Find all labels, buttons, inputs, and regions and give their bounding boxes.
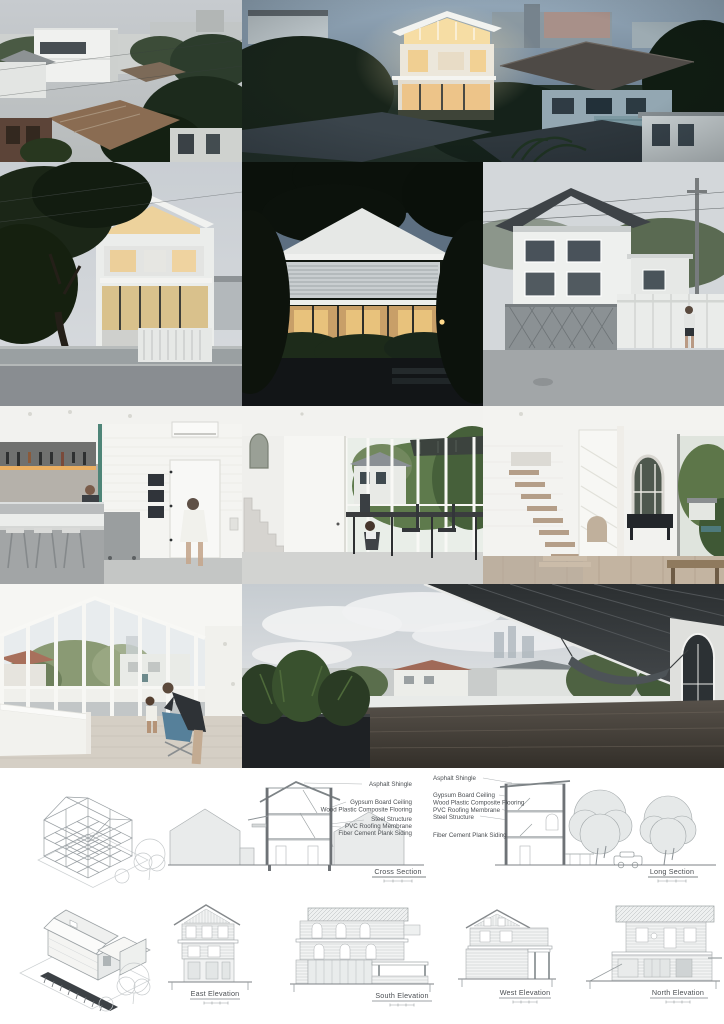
cross-material-steel-structure: Steel Structure (371, 816, 412, 823)
north-elevation-drawing: North Elevation (586, 906, 722, 1004)
photo-staircase (483, 406, 724, 584)
long-material-pvc-membrane: PVC Roofing Membrane (433, 807, 501, 814)
drawings-section: Asphalt Shingle Gypsum Board Ceiling Woo… (0, 768, 724, 1024)
long-section-drawing: Asphalt Shingle Gypsum Board Ceiling Woo… (433, 775, 716, 883)
long-section-trees (569, 790, 696, 854)
structural-frame-axonometric (38, 797, 165, 888)
long-section-scale-bar (658, 880, 686, 883)
long-material-fiber-cement: Fiber Cement Plank Siding (433, 832, 507, 839)
photo-street-corner-dusk (0, 162, 242, 406)
house-axonometric (20, 910, 150, 1011)
cross-material-wpc-flooring: Wood Plastic Composite Flooring (321, 807, 413, 814)
photo-dining (242, 406, 483, 584)
east-elevation-drawing: East Elevation (168, 905, 252, 1005)
photo-aerial-day (0, 0, 242, 162)
cross-section-drawing: Asphalt Shingle Gypsum Board Ceiling Woo… (168, 781, 426, 883)
south-elevation-drawing: South Elevation (290, 908, 434, 1007)
south-elevation-caption: South Elevation (375, 991, 428, 1000)
photo-attic-living (0, 584, 242, 768)
photo-roof-terrace (242, 584, 724, 768)
cross-section-scale-bar (384, 880, 412, 883)
west-elevation-caption: West Elevation (500, 988, 551, 997)
north-elevation-caption: North Elevation (652, 988, 704, 997)
long-material-asphalt-shingle: Asphalt Shingle (433, 775, 477, 782)
cross-section-caption: Cross Section (374, 867, 421, 876)
west-elevation-drawing: West Elevation (458, 910, 556, 1004)
photo-aerial-dusk (242, 0, 724, 162)
photo-kitchen (0, 406, 242, 584)
long-material-wpc-flooring: Wood Plastic Composite Flooring (433, 800, 525, 807)
east-elevation-caption: East Elevation (191, 989, 240, 998)
portfolio-sheet: Asphalt Shingle Gypsum Board Ceiling Woo… (0, 0, 724, 1024)
cross-material-fiber-cement: Fiber Cement Plank Siding (338, 830, 412, 837)
long-section-caption: Long Section (650, 867, 694, 876)
photo-front-facade-dusk (242, 162, 483, 406)
long-material-steel-structure: Steel Structure (433, 814, 474, 821)
cross-material-asphalt-shingle: Asphalt Shingle (369, 781, 413, 788)
photo-street-day (483, 162, 724, 406)
cross-material-gypsum-ceiling: Gypsum Board Ceiling (350, 799, 412, 806)
cross-material-pvc-membrane: PVC Roofing Membrane (345, 823, 413, 830)
long-material-gypsum-ceiling: Gypsum Board Ceiling (433, 792, 495, 799)
